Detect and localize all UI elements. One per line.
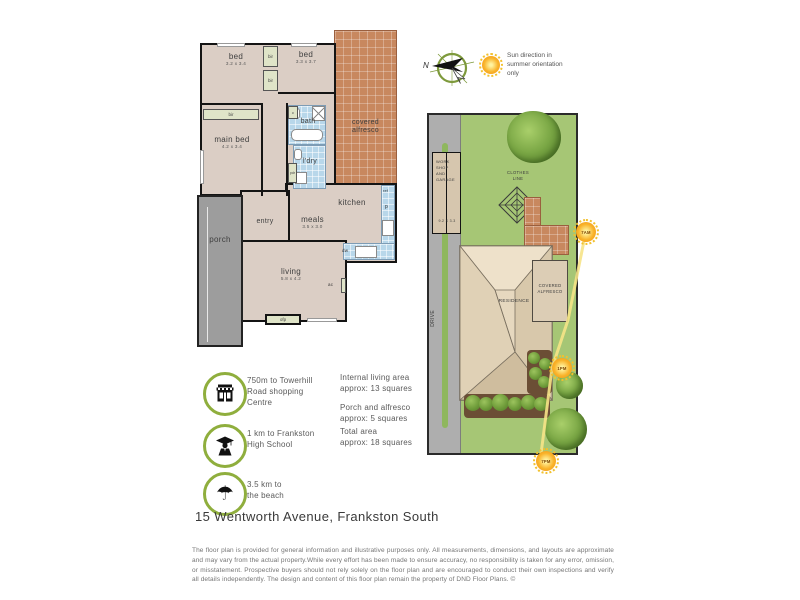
bush-icon <box>539 358 551 370</box>
robe-label: bir <box>268 54 273 59</box>
window <box>200 150 204 184</box>
laundry-name: l'dry <box>295 158 325 166</box>
bush-icon <box>508 397 522 411</box>
room-label-porch: porch <box>199 235 241 244</box>
wall <box>278 92 336 94</box>
room-kitchen-label: kitchen <box>328 198 376 207</box>
shop-icon <box>203 372 247 416</box>
mainbed-name: main bed <box>203 135 261 144</box>
sun-1pm-icon: 1PM <box>552 358 572 378</box>
north-label: N <box>423 61 429 70</box>
bush-icon <box>538 376 550 388</box>
sun-1pm-label: 1PM <box>557 366 566 371</box>
school-icon <box>203 424 247 468</box>
workshop-label: WORK SHOP AND GARAGE <box>434 159 462 183</box>
amenity-school-text: 1 km to Frankston High School <box>247 429 339 451</box>
kitchen-counter-right <box>381 185 395 245</box>
bed2-name: bed <box>281 50 331 59</box>
powder-label: pdr <box>290 171 295 175</box>
area-porch-alfresco: Porch and alfresco approx: 5 squares <box>340 403 440 425</box>
stove-icon <box>382 220 394 236</box>
site-covered-alfresco: COVERED ALFRESCO <box>532 260 568 322</box>
bed2-dims: 3.3 x 3.7 <box>281 59 331 64</box>
area-total: Total area approx: 18 squares <box>340 427 440 449</box>
alfresco-label: covered alfresco <box>335 119 396 135</box>
wall <box>200 103 262 105</box>
drive-label: DRIVE <box>430 310 436 327</box>
bush-icon <box>479 397 493 411</box>
room-porch: porch <box>197 195 243 347</box>
bush-icon <box>492 394 509 411</box>
shop-glyph <box>214 383 236 405</box>
fireplace-label: ofp <box>280 317 286 322</box>
meals-name: meals <box>290 215 335 224</box>
meals-dims: 3.5 x 3.0 <box>290 224 335 229</box>
room-entry-label: entry <box>245 218 285 226</box>
mainbed-dims: 4.2 x 3.4 <box>203 144 261 149</box>
amenity-shop-text: 750m to Towerhill Road shopping Centre <box>247 376 339 408</box>
robe-label: bir <box>268 78 273 83</box>
room-laundry-label: l'dry <box>295 158 325 166</box>
room-bed2-label: bed 3.3 x 3.7 <box>281 50 331 64</box>
area-internal-living: Internal living area approx: 13 squares <box>340 373 440 395</box>
fireplace: ofp <box>265 314 301 325</box>
dishwasher-icon <box>355 246 377 258</box>
workshop-dims: 9.2 X 3.3 <box>433 219 461 223</box>
bath-name: bath <box>291 118 325 126</box>
clothes-line-label: CLOTHES LINE <box>495 170 541 182</box>
room-bath-label: bath <box>291 118 325 126</box>
sun-7pm-label: 7PM <box>541 459 550 464</box>
sun-direction-note: Sun direction in summer orientation only <box>507 52 585 78</box>
fridge-label: ref <box>383 189 388 193</box>
floor-plan-page: covered alfresco porch <box>0 0 800 600</box>
disclaimer-text: The floor plan is provided for general i… <box>192 546 614 585</box>
living-dims: 5.8 x 4.2 <box>261 276 321 281</box>
entry-name: entry <box>245 218 285 226</box>
robe-label: bir <box>228 112 233 117</box>
bed1-dims: 3.2 x 3.4 <box>205 61 267 66</box>
sun-legend-icon <box>482 56 500 74</box>
room-label-alfresco: covered alfresco <box>335 101 396 154</box>
kitchen-name: kitchen <box>328 198 376 207</box>
bush-icon <box>534 397 548 411</box>
room-mainbed-label: main bed 4.2 x 3.4 <box>203 135 261 149</box>
window <box>217 43 245 47</box>
tree-icon <box>507 111 561 163</box>
compass-icon <box>429 45 475 91</box>
room-meals-label: meals 3.5 x 3.0 <box>290 215 335 229</box>
residence-label: RESIDENCE <box>485 299 543 304</box>
aircon-label: ac <box>328 282 333 287</box>
workshop-garage: WORK SHOP AND GARAGE 9.2 X 3.3 <box>432 152 461 234</box>
room-bed1-label: bed 3.2 x 3.4 <box>205 52 267 66</box>
room-covered-alfresco: covered alfresco <box>334 30 397 190</box>
school-glyph <box>214 435 236 457</box>
room-living-label: living 5.8 x 4.2 <box>261 267 321 281</box>
floor-plan: covered alfresco porch <box>195 30 397 377</box>
aircon-unit <box>341 278 346 293</box>
robe-bir: bir <box>203 109 259 120</box>
sun-7pm-icon: 7PM <box>536 451 556 471</box>
umbrella-glyph: ☂ <box>216 484 234 504</box>
porch-label: porch <box>199 235 241 244</box>
cupboard-label: c <box>292 110 294 115</box>
tree-icon <box>545 408 587 450</box>
bathtub-icon <box>291 129 323 141</box>
property-address: 15 Wentworth Avenue, Frankston South <box>195 509 439 524</box>
porch-edge-line <box>207 207 208 342</box>
site-alfresco-label: COVERED ALFRESCO <box>533 283 567 296</box>
window <box>291 43 317 47</box>
pantry-label: p <box>385 204 388 210</box>
amenity-beach-text: 3.5 km to the beach <box>247 480 339 502</box>
wall <box>261 103 263 196</box>
window <box>307 318 337 322</box>
site-plan: DRIVE WORK SHOP AND GARAGE 9.2 X 3.3 CLO… <box>427 113 578 455</box>
sun-7am-label: 7AM <box>581 230 590 235</box>
dishwasher-label: dw <box>342 248 348 253</box>
bed1-name: bed <box>205 52 267 61</box>
living-name: living <box>261 267 321 276</box>
robe-bir: bir <box>263 70 278 91</box>
sun-7am-icon: 7AM <box>576 222 596 242</box>
